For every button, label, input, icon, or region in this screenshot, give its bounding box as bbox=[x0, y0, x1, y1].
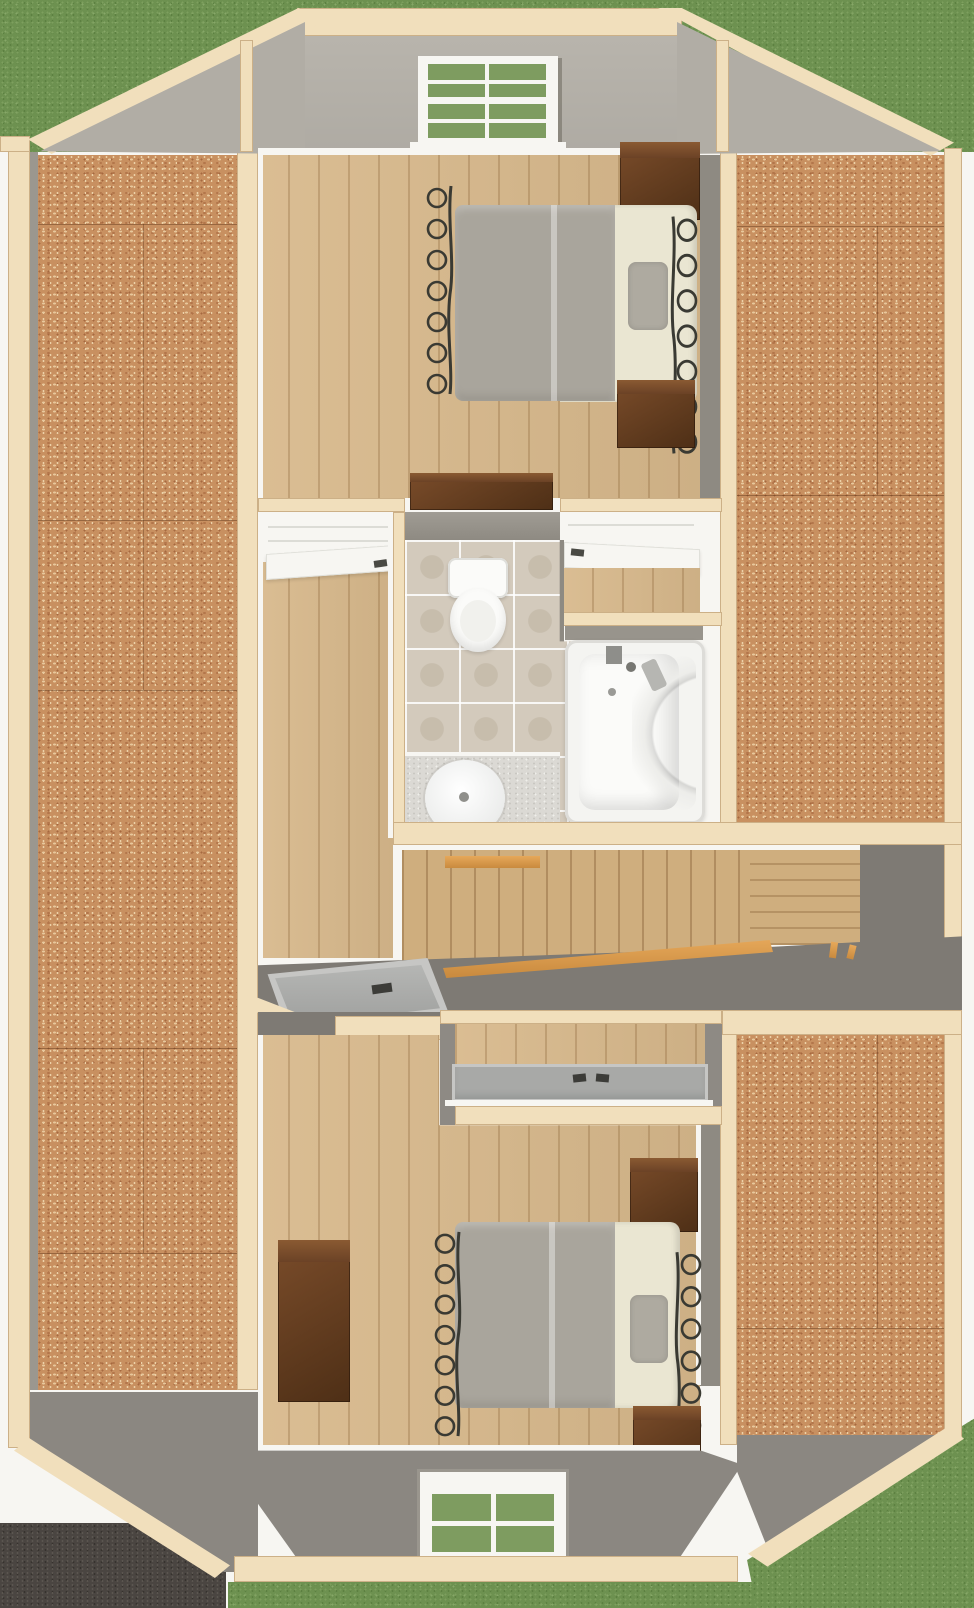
bedroom-bottom-south-wall-line bbox=[258, 1445, 700, 1451]
closet-left-north-wall bbox=[258, 498, 405, 512]
window-bottom-panes bbox=[432, 1494, 554, 1552]
bed-top-pillow bbox=[628, 262, 668, 330]
dresser-top-rim bbox=[620, 142, 700, 158]
nightstand-rim bbox=[630, 1158, 698, 1172]
bed-bottom-sheet-fold bbox=[549, 1222, 555, 1408]
wall-shadow-left bbox=[30, 152, 38, 1390]
wall-inner-left bbox=[237, 148, 258, 1390]
attic-right-osb-floor-lower bbox=[737, 1035, 944, 1435]
wall-outer-left bbox=[8, 148, 30, 1448]
bed-bottom-blanket bbox=[455, 1222, 615, 1408]
skylight-center-handle bbox=[573, 1073, 587, 1082]
window-pane bbox=[432, 1494, 491, 1521]
bed-bottom-pillow bbox=[630, 1295, 668, 1363]
closet-right-door-handle bbox=[571, 548, 585, 556]
dresser-bottom-bedroom bbox=[278, 1240, 350, 1402]
wall-stub-top-left bbox=[0, 136, 30, 152]
niche-north-wall bbox=[440, 1010, 722, 1024]
bathtub-drain bbox=[608, 688, 616, 696]
bed-top-blanket bbox=[455, 205, 615, 401]
attic-right-lower-north-wall bbox=[722, 1010, 962, 1035]
media-chest-bedroom-top bbox=[410, 473, 553, 510]
toilet-lid-inner bbox=[460, 600, 496, 642]
wall-inner-right-top bbox=[720, 148, 737, 830]
window-pane bbox=[496, 1494, 555, 1521]
wall-face-right-top bbox=[700, 155, 720, 505]
skylight-center-handle bbox=[596, 1073, 610, 1082]
closet-right-north-wall bbox=[560, 498, 722, 512]
window-pane bbox=[489, 64, 546, 80]
closet-right-south-wall bbox=[560, 612, 722, 626]
window-top-meeting-rail bbox=[428, 97, 546, 104]
closet-shelf-line bbox=[268, 540, 394, 542]
gable-stud-right bbox=[716, 40, 729, 152]
bed-top-footboard-iron-rail bbox=[424, 182, 458, 398]
window-pane bbox=[428, 64, 485, 80]
closet-shelf-line bbox=[268, 526, 394, 528]
niche-corner-gray bbox=[440, 1106, 455, 1125]
wall-inner-right-bottom bbox=[720, 1024, 737, 1445]
window-pane bbox=[428, 103, 485, 119]
sink-drain bbox=[459, 792, 469, 802]
window-pane bbox=[496, 1526, 555, 1553]
closet-right-floor bbox=[562, 568, 700, 614]
window-bottom-head-trim bbox=[426, 1476, 560, 1492]
media-chest-rim bbox=[410, 473, 553, 482]
gable-stud-left bbox=[240, 40, 253, 152]
bed-bottom-footboard-iron-rail bbox=[432, 1228, 466, 1440]
window-pane bbox=[432, 1526, 491, 1553]
bed-top-sheet-fold bbox=[551, 205, 557, 401]
bathtub-spout bbox=[626, 662, 636, 672]
window-pane bbox=[428, 123, 485, 139]
nightstand-bottom-bedroom-north bbox=[630, 1158, 698, 1232]
nightstand-rim bbox=[633, 1406, 701, 1420]
bedroom-bottom-west-baseboard-line bbox=[258, 1035, 263, 1445]
bedroom-bottom-north-wall bbox=[455, 1106, 722, 1125]
bathtub-north-ledge bbox=[565, 626, 703, 640]
attic-right-osb-floor-upper bbox=[737, 155, 944, 830]
dresser-bottom-rim bbox=[278, 1240, 350, 1262]
eave-band-bottom bbox=[234, 1556, 738, 1582]
stair-landing bbox=[750, 850, 860, 945]
handrail-top bbox=[445, 856, 540, 868]
window-pane bbox=[489, 123, 546, 139]
floorplan-render-canvas bbox=[0, 0, 974, 1608]
bathroom-west-wall bbox=[393, 512, 405, 838]
bathroom-north-wall-face bbox=[405, 512, 560, 540]
skylight-center-pan bbox=[452, 1064, 708, 1102]
nightstand-top-rim bbox=[617, 380, 695, 394]
attic-left-osb-floor bbox=[38, 155, 237, 1390]
closet-shelf-line bbox=[568, 524, 694, 526]
niche-floor-strip bbox=[455, 1024, 705, 1064]
window-pane bbox=[489, 103, 546, 119]
stairwell-west-edge-line bbox=[393, 845, 402, 962]
wall-outer-right bbox=[944, 148, 962, 1440]
stairwell-north-wall-band bbox=[393, 822, 962, 845]
roof-ridge-band-top bbox=[297, 8, 682, 36]
bathtub-faucet bbox=[606, 646, 622, 664]
nightstand-top-bedroom bbox=[617, 380, 695, 448]
